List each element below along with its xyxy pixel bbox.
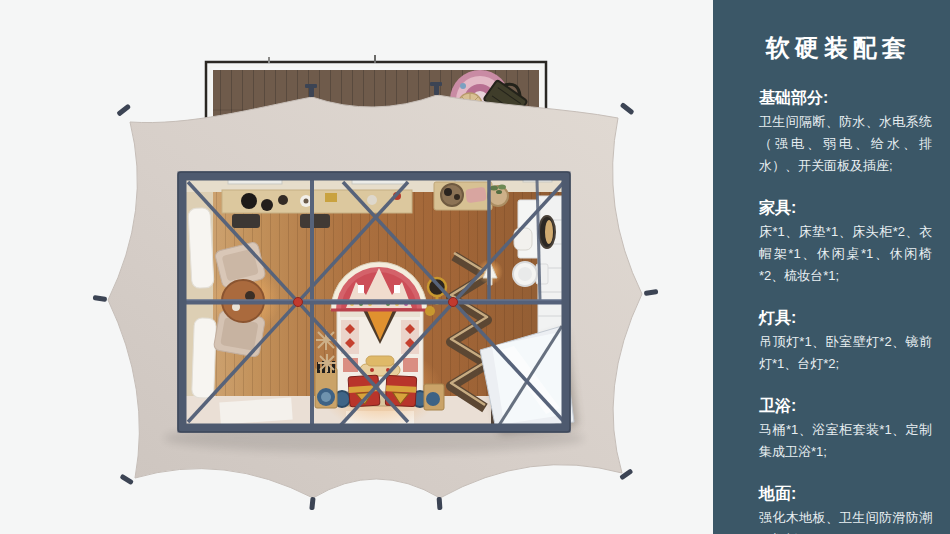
- section-heading: 家具:: [759, 198, 932, 218]
- section-body: 床*1、床垫*1、床头柜*2、衣帽架*1、休闲桌*1、休闲椅*2、梳妆台*1;: [759, 221, 932, 287]
- bathroom-vanity: [434, 182, 492, 210]
- slide: 软硬装配套 基础部分: 卫生间隔断、防水、水电系统（强电、弱电、给水、排水）、开…: [0, 0, 950, 534]
- frame-connector: [294, 298, 303, 307]
- plant-pouf: [488, 185, 508, 207]
- deck-post: [374, 55, 376, 63]
- spec-section-bathroom: 卫浴: 马桶*1、浴室柜套装*1、定制集成卫浴*1;: [759, 396, 932, 463]
- lighted-mirror: [539, 216, 555, 248]
- toilet: [513, 262, 548, 286]
- spec-section-flooring: 地面: 强化木地板、卫生间防滑防潮石塑板;: [759, 484, 932, 534]
- hat-icon: [241, 193, 257, 209]
- floor-plan-image: [0, 0, 713, 534]
- section-body: 马桶*1、浴室柜套装*1、定制集成卫浴*1;: [759, 419, 932, 463]
- spec-section-furniture: 家具: 床*1、床垫*1、床头柜*2、衣帽架*1、休闲桌*1、休闲椅*2、梳妆台…: [759, 198, 932, 287]
- chair: [300, 214, 330, 228]
- nightstand: [424, 384, 444, 410]
- hat-icon: [261, 199, 273, 211]
- section-body: 强化木地板、卫生间防滑防潮石塑板;: [759, 507, 932, 534]
- chair: [232, 214, 260, 228]
- section-heading: 地面:: [759, 484, 932, 504]
- section-heading: 基础部分:: [759, 88, 932, 108]
- deck-post: [268, 57, 270, 63]
- section-heading: 卫浴:: [759, 396, 932, 416]
- frame-connector: [449, 298, 458, 307]
- panel-title: 软硬装配套: [745, 32, 932, 64]
- spec-panel: 软硬装配套 基础部分: 卫生间隔断、防水、水电系统（强电、弱电、给水、排水）、开…: [713, 0, 950, 534]
- section-heading: 灯具:: [759, 308, 932, 328]
- makeup-desk: [514, 200, 540, 258]
- section-body: 吊顶灯*1、卧室壁灯*2、镜前灯*1、台灯*2;: [759, 331, 932, 375]
- spec-section-lighting: 灯具: 吊顶灯*1、卧室壁灯*2、镜前灯*1、台灯*2;: [759, 308, 932, 375]
- spec-section-basics: 基础部分: 卫生间隔断、防水、水电系统（强电、弱电、给水、排水）、开关面板及插座…: [759, 88, 932, 177]
- section-body: 卫生间隔断、防水、水电系统（强电、弱电、给水、排水）、开关面板及插座;: [759, 111, 932, 177]
